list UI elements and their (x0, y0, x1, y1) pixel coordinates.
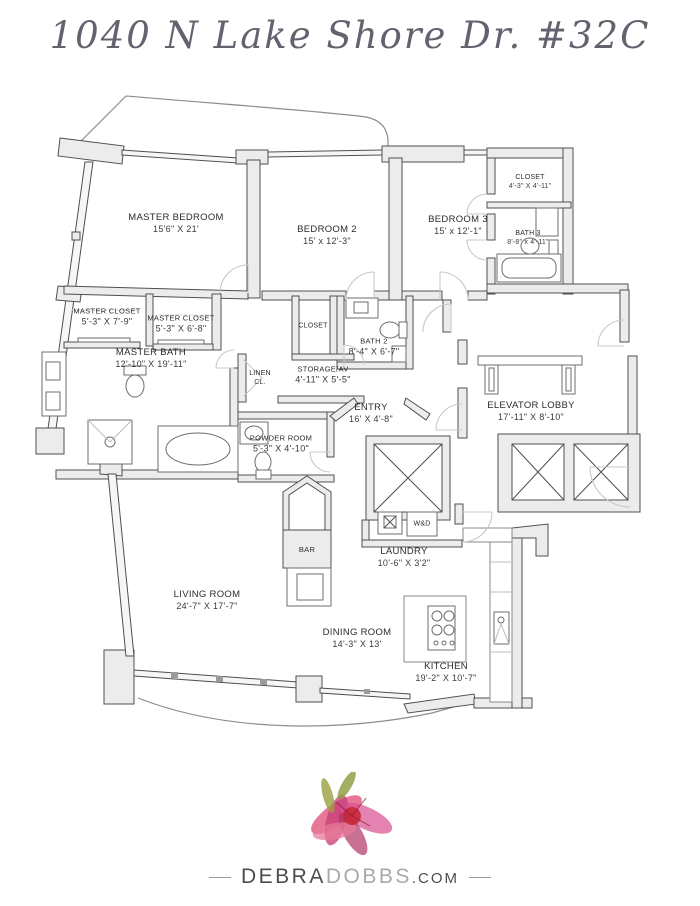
room-label-bedroom-2: BEDROOM 2 15' x 12'-3" (297, 224, 357, 248)
room-label-kitchen: KITCHEN 19'-2" X 10'-7" (415, 661, 476, 685)
room-label-master-closet-2: MASTER CLOSET 5'-3" X 6'-8" (147, 313, 214, 334)
brand-tld: .com (412, 870, 459, 887)
room-label-living-room: LIVING ROOM 24'-7" X 17'-7" (174, 589, 241, 613)
room-label-entry: ENTRY 16' X 4'-8" (349, 402, 393, 426)
room-label-storage-av: STORAGE/AV 4'-11" X 5'-5" (295, 364, 350, 385)
master-bath-vanity-icon (42, 352, 66, 416)
room-label-bath-2: BATH 2 8'-4" X 6'-7" (349, 336, 400, 357)
room-label-bath-3: BATH 3 8'-8" x 4'-11" (507, 229, 548, 247)
room-label-dining-room: DINING ROOM 14'-3" X 13' (323, 627, 392, 651)
brand-name-last: DOBBS (326, 865, 412, 888)
room-label-powder-room: POWDER ROOM 5'-3" X 4'-10" (250, 433, 312, 454)
room-label-closet-center: CLOSET (298, 321, 327, 330)
room-label-master-closet-1: MASTER CLOSET 5'-3" X 7'-9" (73, 306, 140, 327)
flower-logo-icon (0, 772, 700, 858)
room-label-bar: BAR (299, 545, 315, 555)
logo-left-dash (209, 877, 231, 878)
room-label-bedroom-3: BEDROOM 3 15' x 12'-1" (428, 214, 488, 238)
bar-counter-icon (287, 568, 331, 606)
room-label-washer-dryer: W&D (414, 519, 431, 528)
room-label-elevator-lobby: ELEVATOR LOBBY 17'-11" X 8'-10" (487, 400, 575, 424)
logo-right-dash (469, 877, 491, 878)
console-table-icon (478, 356, 582, 394)
shower-icon (88, 420, 132, 464)
floor-plan-drawing (0, 0, 700, 906)
brand-wordmark: DEBRADOBBS.com (0, 865, 700, 889)
kitchen-island-icon (404, 596, 466, 662)
room-label-master-bath: MASTER BATH 12'-10" X 19'-11" (115, 347, 186, 371)
brand-name-first: DEBRA (241, 865, 326, 888)
room-label-closet-top: CLOSET 4'-3" X 4'-11" (509, 173, 552, 191)
room-label-linen-closet: LINEN CL. (249, 369, 271, 387)
room-label-laundry: LAUNDRY 10'-6" X 3'2" (378, 546, 431, 570)
brand-logo: DEBRADOBBS.com (0, 772, 700, 889)
bathtub-icon (158, 426, 238, 472)
room-label-master-bedroom: MASTER BEDROOM 15'6" X 21' (128, 212, 224, 236)
